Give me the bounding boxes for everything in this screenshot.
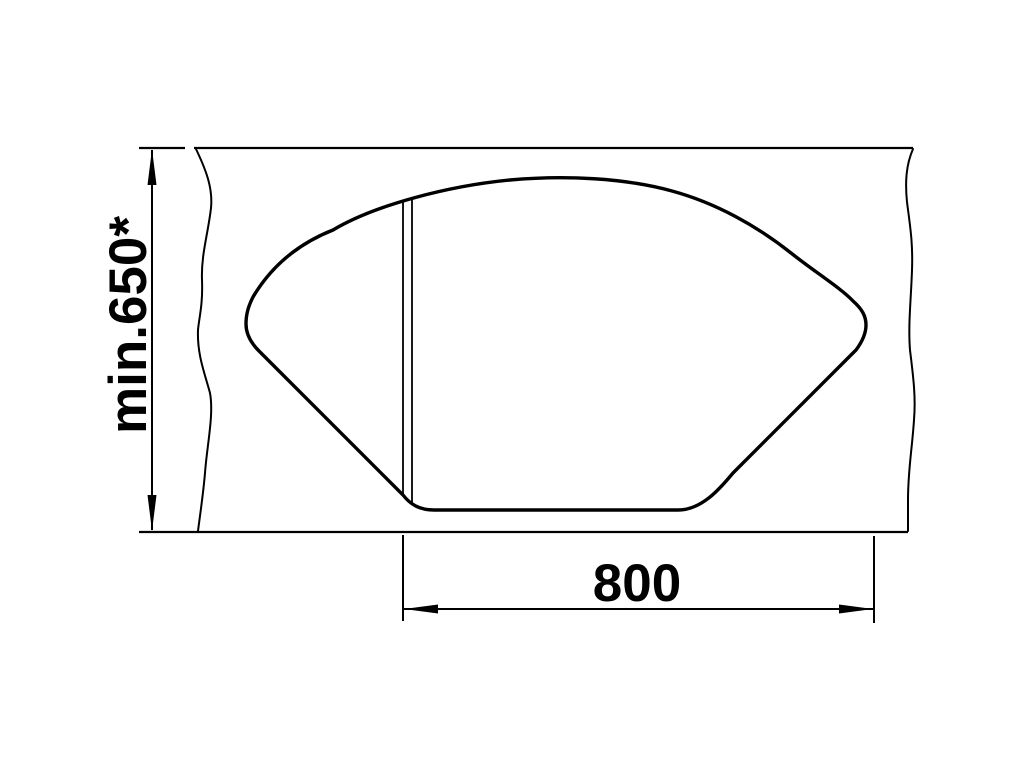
arrow-down-icon (148, 495, 157, 531)
arrow-up-icon (148, 149, 157, 185)
vertical-dimension-label: min.650* (99, 216, 158, 434)
sink-cutout-drawing: min.650* 800 (0, 0, 1024, 768)
break-line-left (196, 149, 211, 531)
countertop-band (139, 148, 915, 532)
horizontal-dimension: 800 (403, 535, 874, 623)
arrow-right-icon (839, 605, 873, 614)
break-line-right (906, 149, 915, 531)
arrow-left-icon (404, 605, 438, 614)
sink-divider-lines (403, 199, 412, 503)
horizontal-dimension-label: 800 (593, 554, 681, 613)
sink-cutout-outline (246, 178, 866, 510)
vertical-dimension: min.650* (99, 148, 185, 531)
sink-cutout (246, 178, 866, 510)
technical-drawing-canvas: min.650* 800 (0, 0, 1024, 768)
